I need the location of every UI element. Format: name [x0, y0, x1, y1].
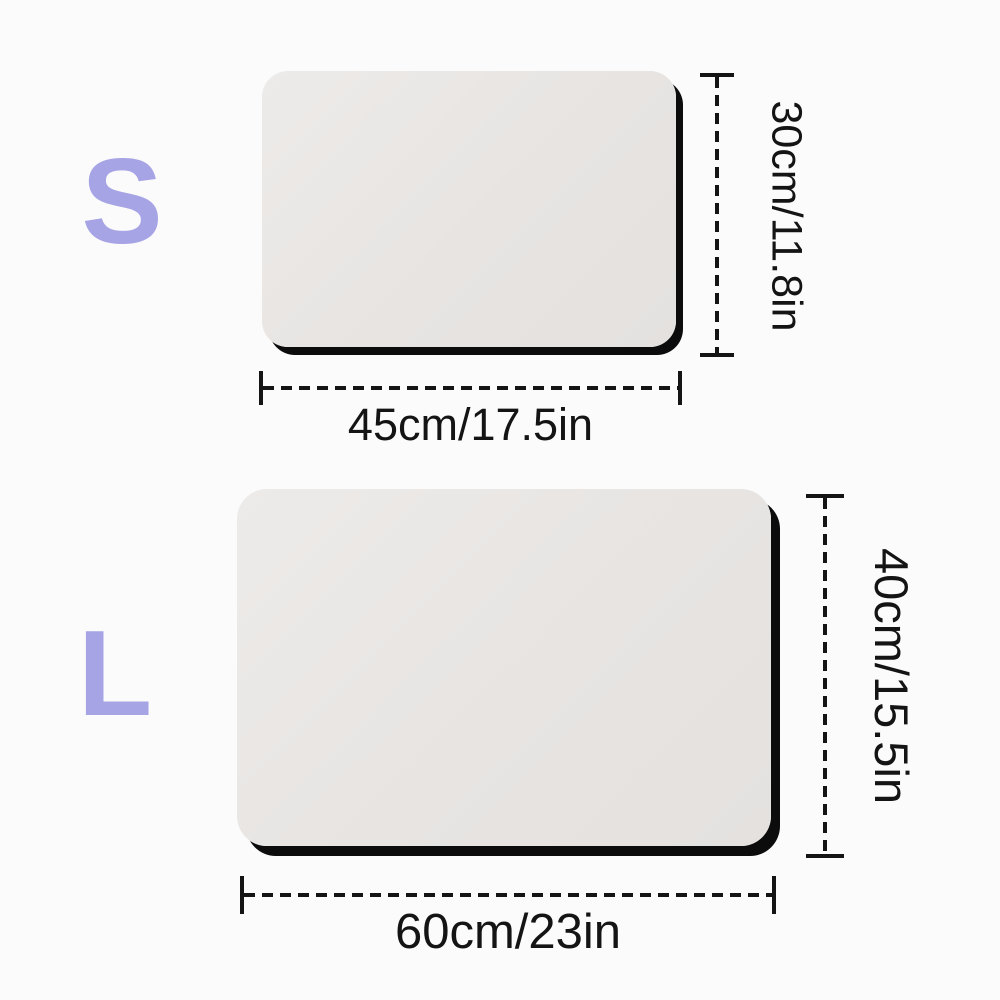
size-chart-diagram: S 30cm/11.8in 45cm/17.5in L 40cm/15.5in … — [0, 0, 1000, 1000]
width-label-small: 45cm/17.5in — [259, 400, 682, 450]
height-label-small: 30cm/11.8in — [762, 100, 809, 331]
mat-small — [262, 71, 676, 347]
dimension-endcap — [806, 854, 844, 858]
size-letter-l: L — [55, 612, 175, 734]
mat-large — [237, 489, 771, 846]
width-label-large: 60cm/23in — [240, 906, 776, 960]
dimension-dashed-line — [263, 386, 678, 390]
dimension-dashed-line — [823, 498, 827, 854]
size-letter-s: S — [62, 140, 182, 262]
dimension-endcap — [700, 353, 734, 357]
height-dimension-small — [700, 73, 734, 357]
dimension-dashed-line — [244, 893, 772, 897]
height-dimension-large — [806, 494, 844, 858]
dimension-dashed-line — [715, 77, 719, 353]
height-label-large: 40cm/15.5in — [865, 548, 917, 804]
